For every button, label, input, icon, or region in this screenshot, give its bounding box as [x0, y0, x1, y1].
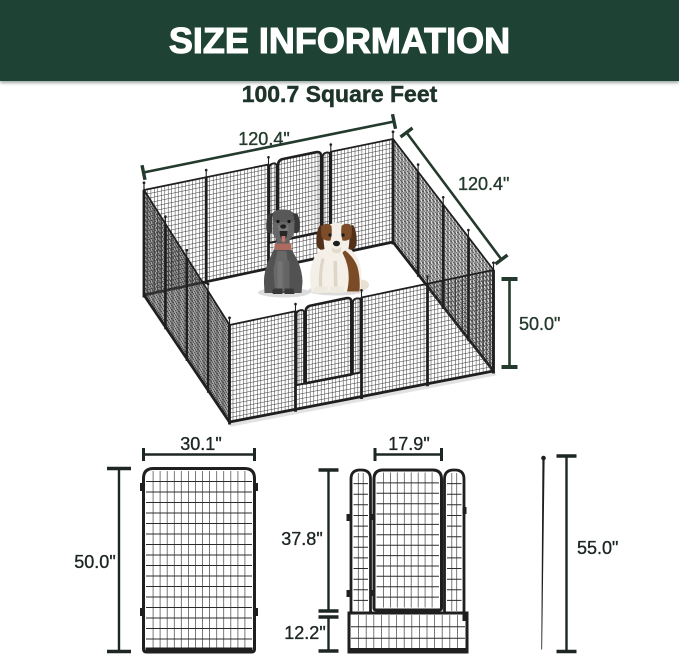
svg-text:30.1": 30.1" [180, 434, 221, 454]
svg-text:55.0": 55.0" [577, 538, 618, 558]
svg-text:37.8": 37.8" [281, 529, 322, 549]
svg-text:50.0": 50.0" [519, 314, 560, 334]
svg-text:120.4": 120.4" [238, 129, 289, 149]
svg-text:50.0": 50.0" [74, 552, 115, 572]
svg-text:17.9": 17.9" [388, 434, 429, 454]
svg-text:120.4": 120.4" [458, 174, 509, 194]
svg-text:12.2": 12.2" [284, 623, 325, 643]
